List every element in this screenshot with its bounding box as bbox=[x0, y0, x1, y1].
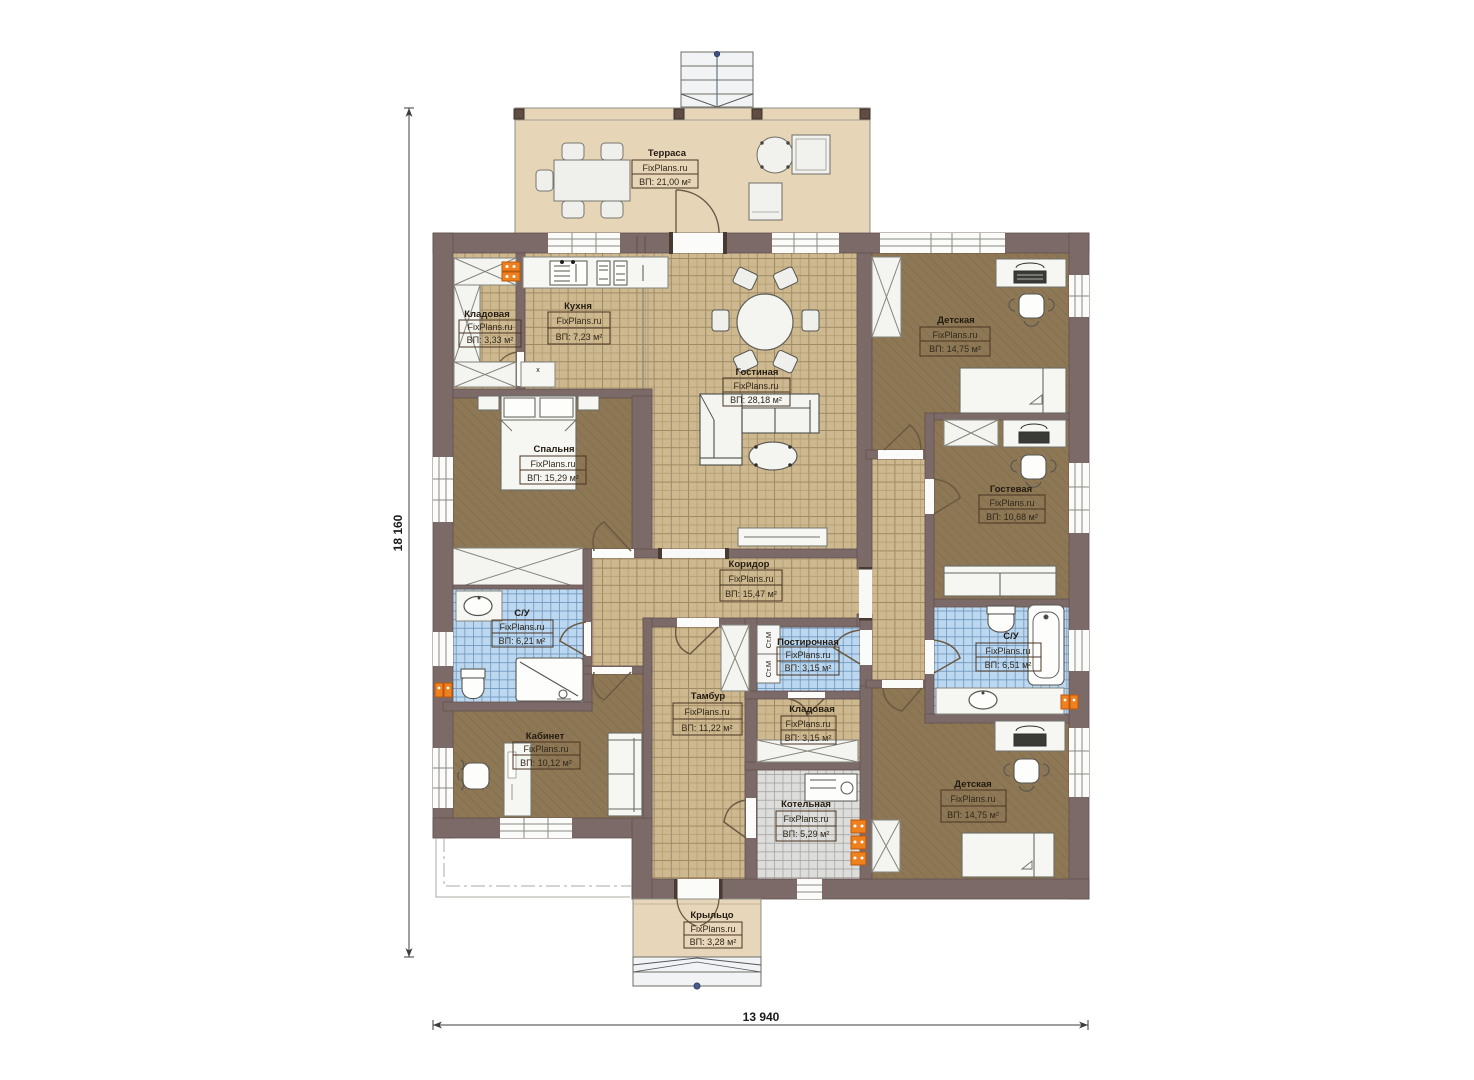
svg-text:FixPlans.ru: FixPlans.ru bbox=[985, 646, 1030, 656]
svg-text:Детская: Детская bbox=[954, 779, 991, 790]
svg-text:ВП: 14,75 м²: ВП: 14,75 м² bbox=[947, 810, 999, 820]
svg-text:Постирочная: Постирочная bbox=[777, 637, 839, 648]
svg-text:ВП: 3,15 м²: ВП: 3,15 м² bbox=[785, 663, 832, 673]
svg-text:ВП: 14,75 м²: ВП: 14,75 м² bbox=[929, 344, 981, 354]
svg-text:ВП: 10,68 м²: ВП: 10,68 м² bbox=[986, 512, 1038, 522]
svg-text:FixPlans.ru: FixPlans.ru bbox=[950, 794, 995, 804]
svg-text:Коридор: Коридор bbox=[729, 559, 770, 570]
svg-text:ВП: 21,00 м²: ВП: 21,00 м² bbox=[639, 177, 691, 187]
svg-text:18 160: 18 160 bbox=[391, 514, 405, 551]
svg-text:ВП: 7,23 м²: ВП: 7,23 м² bbox=[556, 332, 603, 342]
svg-text:ВП: 6,21 м²: ВП: 6,21 м² bbox=[499, 636, 546, 646]
svg-text:ВП: 3,33 м²: ВП: 3,33 м² bbox=[467, 335, 514, 345]
svg-text:FixPlans.ru: FixPlans.ru bbox=[728, 574, 773, 584]
svg-text:FixPlans.ru: FixPlans.ru bbox=[530, 459, 575, 469]
svg-text:ВП: 15,29 м²: ВП: 15,29 м² bbox=[527, 473, 579, 483]
svg-text:FixPlans.ru: FixPlans.ru bbox=[467, 322, 512, 332]
svg-text:Кладовая: Кладовая bbox=[464, 309, 510, 320]
svg-text:Ст.М: Ст.М bbox=[764, 632, 773, 648]
svg-text:x: x bbox=[536, 367, 540, 374]
svg-text:Кладовая: Кладовая bbox=[789, 704, 835, 715]
svg-text:ВП: 10,12 м²: ВП: 10,12 м² bbox=[520, 758, 572, 768]
svg-text:FixPlans.ru: FixPlans.ru bbox=[783, 814, 828, 824]
svg-text:FixPlans.ru: FixPlans.ru bbox=[989, 498, 1034, 508]
svg-text:Кухня: Кухня bbox=[564, 301, 592, 312]
svg-text:FixPlans.ru: FixPlans.ru bbox=[690, 924, 735, 934]
svg-text:Котельная: Котельная bbox=[781, 799, 831, 810]
svg-text:Кабинет: Кабинет bbox=[526, 731, 565, 742]
svg-text:ВП: 3,15 м²: ВП: 3,15 м² bbox=[785, 733, 832, 743]
svg-text:Терраса: Терраса bbox=[648, 148, 687, 159]
svg-text:Крыльцо: Крыльцо bbox=[690, 910, 733, 921]
svg-text:FixPlans.ru: FixPlans.ru bbox=[523, 744, 568, 754]
svg-text:Гостевая: Гостевая bbox=[990, 484, 1032, 495]
svg-text:FixPlans.ru: FixPlans.ru bbox=[556, 316, 601, 326]
svg-text:FixPlans.ru: FixPlans.ru bbox=[932, 330, 977, 340]
svg-text:FixPlans.ru: FixPlans.ru bbox=[684, 707, 729, 717]
svg-text:Гостиная: Гостиная bbox=[736, 367, 779, 378]
svg-text:FixPlans.ru: FixPlans.ru bbox=[785, 719, 830, 729]
svg-text:Ст.М: Ст.М bbox=[764, 661, 773, 677]
svg-text:Детская: Детская bbox=[937, 315, 974, 326]
svg-text:FixPlans.ru: FixPlans.ru bbox=[785, 650, 830, 660]
svg-text:ВП: 3,28 м²: ВП: 3,28 м² bbox=[690, 937, 737, 947]
svg-text:FixPlans.ru: FixPlans.ru bbox=[642, 163, 687, 173]
svg-text:Спальня: Спальня bbox=[533, 444, 574, 455]
svg-text:ВП: 11,22 м²: ВП: 11,22 м² bbox=[681, 723, 732, 733]
svg-text:С/У: С/У bbox=[1003, 631, 1019, 642]
svg-text:С/У: С/У bbox=[514, 608, 530, 619]
svg-text:Тамбур: Тамбур bbox=[691, 691, 726, 702]
svg-text:ВП: 6,51 м²: ВП: 6,51 м² bbox=[985, 660, 1032, 670]
svg-text:FixPlans.ru: FixPlans.ru bbox=[733, 381, 778, 391]
svg-text:ВП: 5,29 м²: ВП: 5,29 м² bbox=[783, 829, 830, 839]
svg-text:ВП: 15,47 м²: ВП: 15,47 м² bbox=[725, 589, 777, 599]
svg-text:13 940: 13 940 bbox=[743, 1010, 780, 1024]
svg-text:FixPlans.ru: FixPlans.ru bbox=[499, 622, 544, 632]
svg-text:ВП: 28,18 м²: ВП: 28,18 м² bbox=[730, 395, 782, 405]
